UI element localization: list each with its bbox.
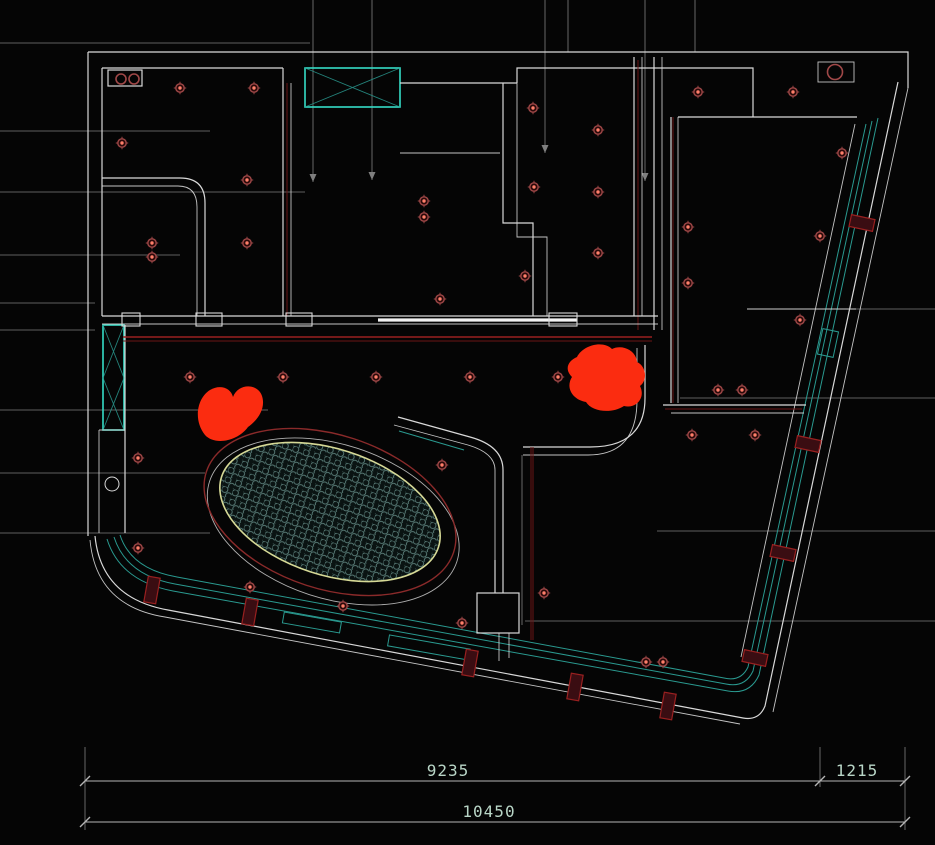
mullion-mark bbox=[795, 436, 821, 453]
downlight-symbol bbox=[787, 86, 799, 98]
leader-arrowhead bbox=[369, 172, 376, 180]
crossed-shaft-box-left bbox=[103, 325, 124, 430]
downlight-symbol bbox=[736, 384, 748, 396]
downlight-symbol bbox=[592, 247, 604, 259]
leader-arrowhead bbox=[310, 174, 317, 182]
downlight-symbol bbox=[592, 186, 604, 198]
downlight-symbol bbox=[682, 221, 694, 233]
mullion-mark bbox=[567, 673, 583, 701]
crossed-duct-box-top bbox=[305, 68, 400, 107]
downlight-symbol bbox=[418, 195, 430, 207]
downlight-symbol bbox=[686, 429, 698, 441]
downlights-layer bbox=[116, 82, 848, 668]
downlight-symbol bbox=[146, 237, 158, 249]
downlight-symbol bbox=[749, 429, 761, 441]
markers bbox=[198, 344, 645, 441]
downlight-symbol bbox=[527, 102, 539, 114]
downlight-symbol bbox=[528, 181, 540, 193]
mullion-mark bbox=[770, 545, 796, 562]
downlight-symbol bbox=[248, 82, 260, 94]
downlight-symbol bbox=[241, 237, 253, 249]
cad-viewport[interactable]: 9235 1215 10450 bbox=[0, 0, 935, 845]
mullion-mark bbox=[849, 215, 875, 232]
downlight-symbol bbox=[592, 124, 604, 136]
downlight-symbol bbox=[640, 656, 652, 668]
revision-cloud-right bbox=[568, 344, 645, 411]
dimension-block: 9235 1215 10450 bbox=[80, 747, 910, 830]
downlight-symbol bbox=[538, 587, 550, 599]
downlight-symbol bbox=[692, 86, 704, 98]
downlight-symbol bbox=[712, 384, 724, 396]
leader-arrowhead bbox=[642, 173, 649, 181]
downlight-symbol bbox=[434, 293, 446, 305]
mullion-mark bbox=[144, 576, 160, 604]
dimension-10450-label: 10450 bbox=[462, 802, 515, 821]
downlight-symbol bbox=[418, 211, 430, 223]
downlight-symbol bbox=[277, 371, 289, 383]
column-box bbox=[477, 593, 519, 633]
mullion-mark bbox=[660, 692, 676, 720]
ceiling-ring-marker bbox=[828, 65, 843, 80]
downlight-symbol bbox=[464, 371, 476, 383]
downlight-symbol bbox=[794, 314, 806, 326]
downlight-symbol bbox=[436, 459, 448, 471]
dimension-1215-label: 1215 bbox=[836, 761, 879, 780]
mullion-mark bbox=[242, 598, 258, 626]
double-downlight-ring bbox=[129, 74, 139, 84]
downlight-symbol bbox=[682, 277, 694, 289]
downlight-symbol bbox=[814, 230, 826, 242]
downlight-symbol bbox=[836, 147, 848, 159]
downlight-symbol bbox=[116, 137, 128, 149]
leader-arrowhead bbox=[542, 145, 549, 153]
downlight-symbol bbox=[132, 542, 144, 554]
downlight-symbol bbox=[174, 82, 186, 94]
downlight-symbol bbox=[519, 270, 531, 282]
downlight-symbol bbox=[146, 251, 158, 263]
downlight-symbol bbox=[241, 174, 253, 186]
port-marker bbox=[105, 477, 119, 491]
mullion-mark bbox=[462, 649, 478, 677]
downlight-symbol bbox=[132, 452, 144, 464]
dimension-9235-label: 9235 bbox=[427, 761, 470, 780]
downlight-symbol bbox=[456, 617, 468, 629]
interior-walls bbox=[99, 57, 857, 661]
downlight-symbol bbox=[552, 371, 564, 383]
ceiling-plan-drawing[interactable]: 9235 1215 10450 bbox=[0, 0, 935, 845]
downlight-symbol bbox=[184, 371, 196, 383]
downlight-symbol bbox=[370, 371, 382, 383]
double-downlight-ring bbox=[116, 74, 126, 84]
